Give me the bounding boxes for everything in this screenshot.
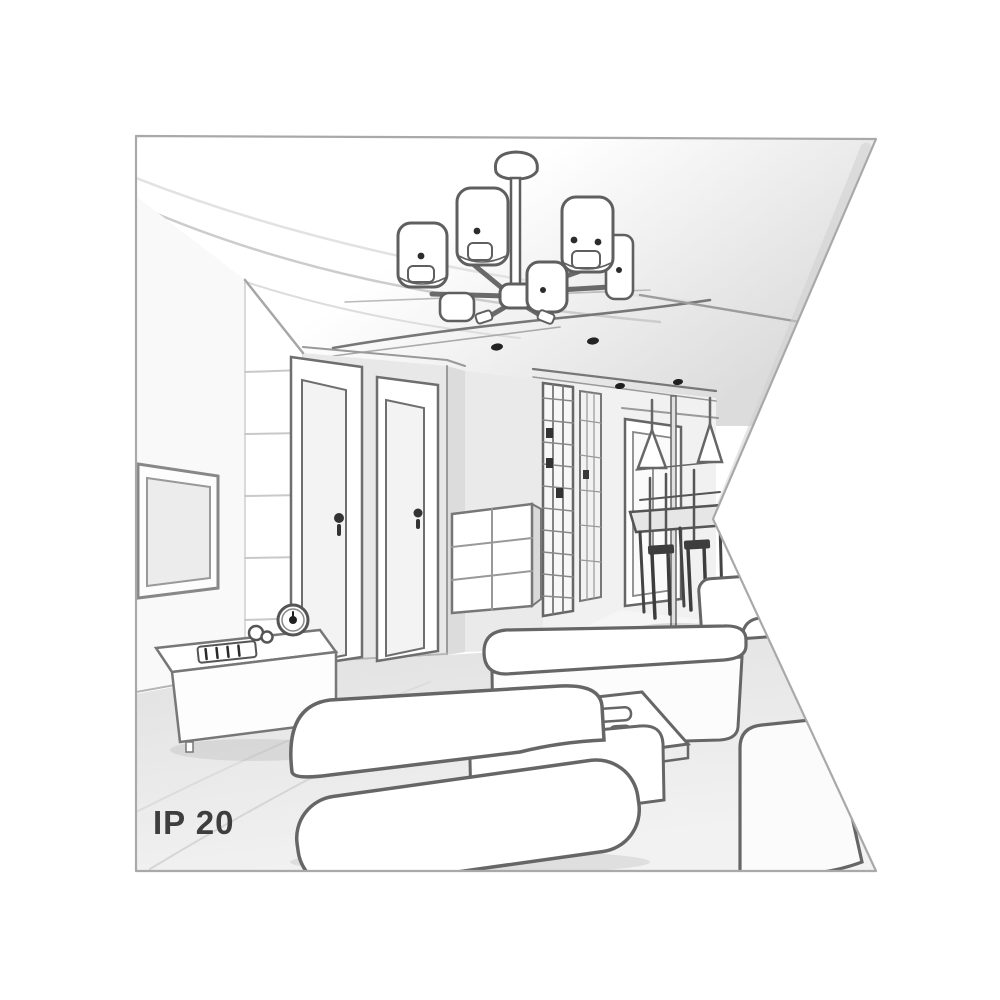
chandelier-canopy [495,152,537,179]
tv-screen [147,478,210,586]
dresser [452,504,541,613]
ip-rating-label: IP 20 [153,806,234,839]
wardrobe [543,383,573,616]
chandelier-shade [527,262,567,312]
alarm-clock [278,605,308,635]
product-illustration: IP 20 [0,0,1000,1000]
room-sketch [0,0,1000,1000]
door-right [377,377,438,661]
console-leg [186,742,193,752]
tv [138,464,218,598]
closet-panel [580,391,601,601]
chandelier-stem [511,178,520,288]
chandelier-shade [440,293,474,321]
tv-wall [136,196,245,693]
